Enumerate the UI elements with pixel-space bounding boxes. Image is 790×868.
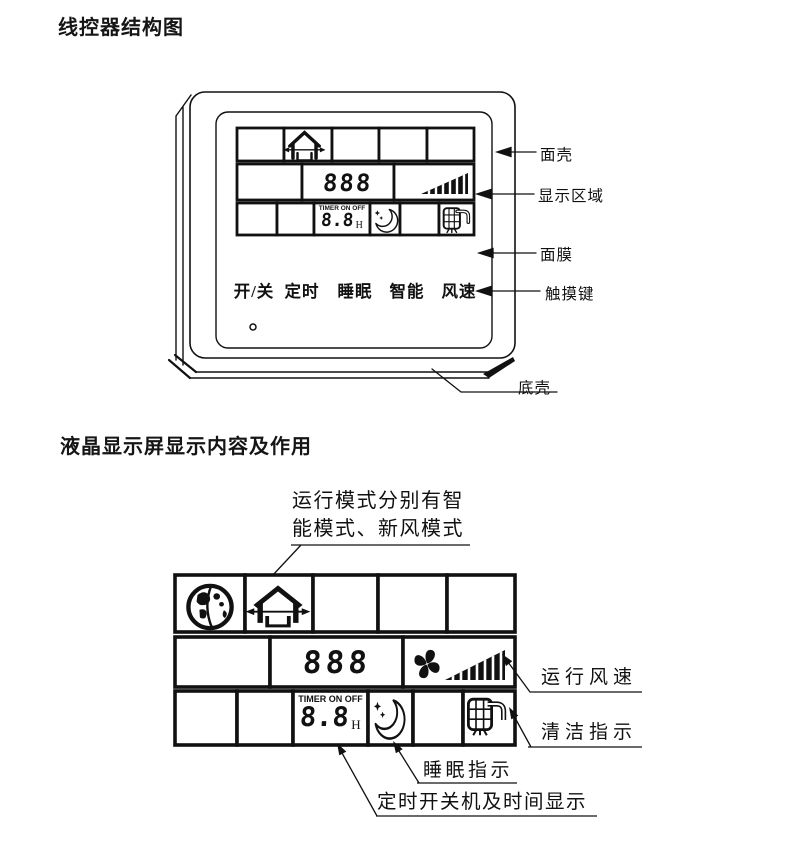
controller-structure-diagram: [169, 92, 557, 392]
lcd-cell: [378, 575, 447, 632]
section1-title: 线控器结构图: [58, 11, 184, 40]
mode-digits-display: 888: [302, 169, 394, 197]
callout-fan-speed: 运行风速: [541, 662, 637, 689]
callout-timer: 定时开关机及时间显示: [377, 785, 587, 814]
callout-touch-key: 触摸键: [545, 282, 595, 304]
section2-title: 液晶显示屏显示内容及作用: [60, 430, 312, 459]
leader-mode-note: [272, 545, 470, 576]
touch-key-sleep: 睡眠: [335, 278, 375, 302]
mode-digits-display: 888: [272, 645, 402, 681]
timer-hour-unit: H: [351, 717, 360, 733]
lcd-cell: [175, 637, 270, 687]
lcd-cell: [237, 203, 277, 235]
lcd-cell: [400, 203, 439, 235]
callout-front-shell: 面壳: [540, 143, 573, 165]
touch-key-smart: 智能: [387, 278, 427, 302]
lcd-cell: [332, 128, 379, 161]
callout-membrane: 面膜: [540, 243, 573, 265]
seven-segment-digits: 8.8: [320, 210, 354, 231]
lcd-cell: [237, 691, 293, 745]
lcd-cell: [175, 691, 237, 745]
timer-value-display: 8.8 H: [313, 210, 371, 231]
lcd-cell: [447, 575, 515, 632]
shell-depth-bottom: [190, 372, 494, 378]
seven-segment-digits: 888: [302, 645, 373, 681]
lcd-cell: [245, 575, 313, 632]
lcd-cell: [237, 164, 302, 200]
seven-segment-digits: 8.8: [299, 702, 350, 733]
callout-bottom-shell: 底壳: [518, 376, 551, 398]
touch-key-timer: 定时: [283, 278, 321, 302]
lcd-cell: [413, 691, 463, 745]
timer-value-display: 8.8 H: [292, 702, 369, 733]
touch-key-fanspeed: 风速: [439, 278, 479, 302]
mode-note-line1: 运行模式分别有智: [292, 487, 464, 515]
seven-segment-digits: 888: [322, 169, 373, 197]
led-dot: [250, 324, 256, 330]
manual-page: 线控器结构图 开/关 定时 睡眠 智能 风速 面壳 显示区域 面膜 触摸键 底壳…: [0, 0, 790, 868]
lcd-cell: [379, 128, 427, 161]
mode-note-line2: 能模式、新风模式: [292, 515, 464, 543]
lcd-cell: [427, 128, 474, 161]
mode-note: 运行模式分别有智 能模式、新风模式: [292, 487, 464, 543]
touch-key-power: 开/关: [231, 278, 277, 302]
shell-depth-left: [176, 95, 191, 365]
callout-clean: 清洁指示: [541, 717, 637, 744]
lcd-cell: [313, 575, 378, 632]
callout-display-area: 显示区域: [538, 184, 604, 206]
callout-sleep: 睡眠指示: [423, 755, 513, 782]
timer-hour-unit: H: [356, 220, 363, 231]
shell-bevel-right: [483, 357, 515, 378]
lcd-cell: [237, 128, 284, 161]
lcd-cell: [277, 203, 314, 235]
